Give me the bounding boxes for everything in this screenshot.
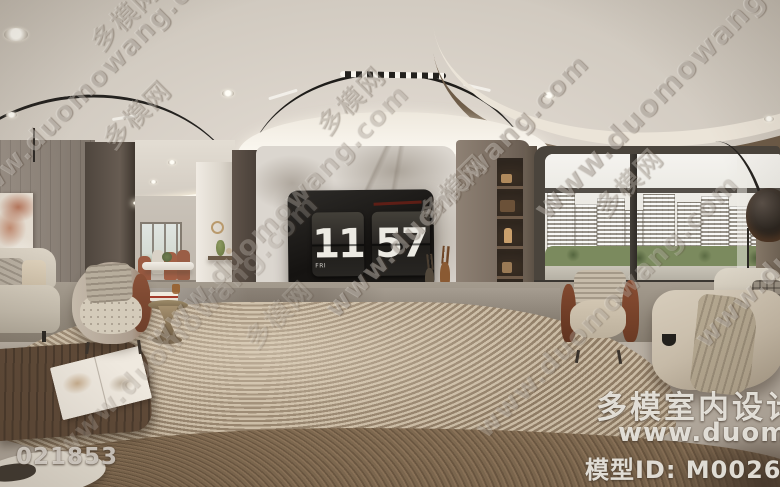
niche-shelf: [497, 186, 523, 189]
niche-object: [501, 174, 512, 183]
sofa-leg: [42, 331, 46, 342]
left-armchair-pillow-striped: [85, 262, 134, 303]
floor-dark-corner: [676, 430, 780, 487]
right-armchair-seat: [570, 300, 626, 338]
side-table-foot: [152, 336, 182, 344]
flip-clock-minute-panel: 57: [372, 211, 431, 276]
wall-round-decor: [211, 221, 224, 234]
table-plant: [162, 252, 172, 262]
niche-object: [504, 228, 512, 243]
throw-blanket: [689, 293, 759, 397]
niche-shelf: [497, 276, 523, 279]
wall-lamp-stem: [33, 128, 35, 162]
hallway-spot: [168, 160, 176, 165]
niche-shelf: [497, 246, 523, 249]
ceiling-spot: [764, 116, 774, 122]
floating-shelf: [208, 256, 233, 260]
niche-shelf: [497, 216, 523, 219]
left-sofa-seat: [0, 285, 60, 333]
niche-object: [500, 200, 515, 212]
green-vase: [216, 240, 225, 256]
tv-red-sliver: [374, 201, 422, 206]
tv-screen: 11 57 FRI: [287, 189, 434, 293]
panorama-living-room-render: 11 57 FRI: [0, 0, 780, 487]
clock-day-label: FRI: [315, 262, 326, 269]
side-table-glass: [172, 284, 180, 294]
right-armchair-back-striped: [574, 270, 626, 304]
ceiling-spot: [222, 90, 234, 97]
ceiling-spot: [543, 92, 555, 99]
window-mullion: [630, 154, 637, 280]
ceiling-spot: [6, 112, 17, 118]
ceiling-spot: [4, 28, 28, 41]
arc-lamp-dome-shade: [746, 188, 780, 242]
dining-table: [142, 262, 194, 270]
chaise-leg: [662, 334, 676, 346]
niche-object: [502, 262, 512, 273]
hallway-spot: [150, 180, 157, 184]
